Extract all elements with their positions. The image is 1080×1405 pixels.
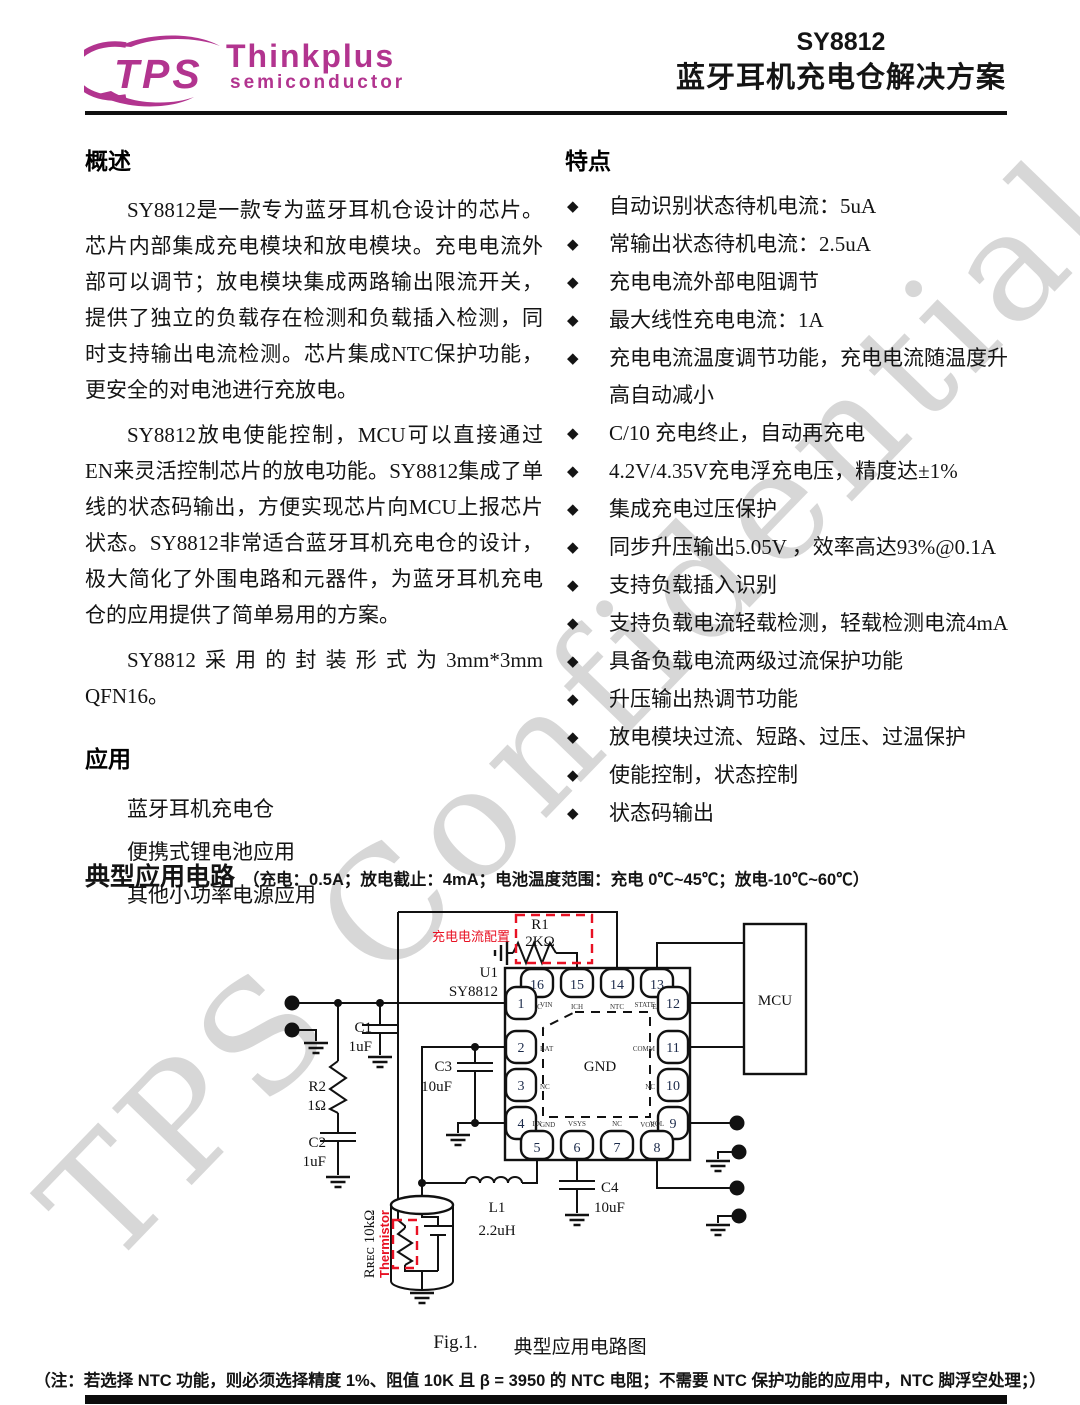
svg-text:6: 6 bbox=[574, 1141, 581, 1156]
list-item: ◆支持负载插入识别 bbox=[565, 567, 1017, 604]
overview-paragraph-3: SY8812采用的封装形式为3mm*3mm QFN16。 bbox=[85, 642, 543, 714]
figure-caption: Fig.1. 典型应用电路图 bbox=[0, 1332, 1080, 1359]
svg-text:LX: LX bbox=[532, 1120, 541, 1128]
ic-part-label: SY8812 bbox=[449, 984, 498, 1000]
svg-text:VSYS: VSYS bbox=[568, 1120, 586, 1128]
svg-text:14: 14 bbox=[610, 978, 624, 993]
svg-text:5: 5 bbox=[534, 1141, 541, 1156]
svg-text:15: 15 bbox=[570, 978, 584, 993]
diamond-bullet-icon: ◆ bbox=[567, 226, 579, 263]
overview-column: 概述 SY8812是一款专为蓝牙耳机仓设计的芯片。芯片内部集成充电模块和放电模块… bbox=[85, 142, 543, 917]
ground-icon bbox=[565, 1215, 589, 1225]
charge-current-annotation: 充电电流配置 bbox=[432, 929, 510, 944]
svg-text:ICH: ICH bbox=[571, 1003, 583, 1011]
list-item: ◆具备负载电流两级过流保护功能 bbox=[565, 643, 1017, 680]
svg-text:VIN: VIN bbox=[540, 1001, 552, 1009]
header-divider bbox=[85, 111, 1007, 115]
svg-text:NTC: NTC bbox=[610, 1003, 624, 1011]
ground-icon bbox=[304, 1043, 328, 1053]
svg-text:12: 12 bbox=[666, 997, 680, 1012]
ground-icon bbox=[495, 941, 507, 965]
diamond-bullet-icon: ◆ bbox=[567, 453, 579, 490]
ic-pad-label: GND bbox=[584, 1059, 617, 1075]
diamond-bullet-icon: ◆ bbox=[567, 681, 579, 718]
svg-text:NC: NC bbox=[612, 1120, 622, 1128]
svg-text:10: 10 bbox=[666, 1079, 680, 1094]
vol-terminal bbox=[730, 1181, 745, 1196]
list-item: ◆常输出状态待机电流：2.5uA bbox=[565, 226, 1017, 263]
l1-value: 2.2uH bbox=[478, 1223, 515, 1239]
part-number: SY8812 bbox=[676, 26, 1006, 58]
c4-value: 10uF bbox=[594, 1200, 625, 1216]
list-item: ◆充电电流温度调节功能，充电电流随温度升高自动减小 bbox=[565, 340, 1017, 414]
c3-refdes: C3 bbox=[434, 1059, 452, 1075]
thermistor-label: Thermistor bbox=[377, 1210, 392, 1278]
list-item: ◆最大线性充电电流：1A bbox=[565, 302, 1017, 339]
page-title: 蓝牙耳机充电仓解决方案 bbox=[676, 58, 1006, 98]
tps-logo-icon: TPS bbox=[84, 34, 236, 110]
l1-refdes: L1 bbox=[489, 1200, 506, 1216]
footer-bar bbox=[85, 1395, 1007, 1404]
gnd-terminal bbox=[732, 1209, 747, 1224]
diamond-bullet-icon: ◆ bbox=[567, 491, 579, 528]
datasheet-page: TPS Confidential TPS Thinkplus semicondu… bbox=[0, 0, 1080, 1405]
list-item: ◆使能控制，状态控制 bbox=[565, 757, 1017, 794]
diamond-bullet-icon: ◆ bbox=[567, 719, 579, 756]
diamond-bullet-icon: ◆ bbox=[567, 643, 579, 680]
circuit-title: 典型应用电路 bbox=[85, 857, 235, 893]
ground-icon bbox=[410, 1293, 434, 1303]
svg-text:8: 8 bbox=[654, 1141, 661, 1156]
overview-paragraph-2: SY8812放电使能控制，MCU可以直接通过EN来灵活控制芯片的放电功能。SY8… bbox=[85, 417, 543, 633]
diamond-bullet-icon: ◆ bbox=[567, 795, 579, 832]
input-terminal bbox=[285, 996, 300, 1011]
overview-heading: 概述 bbox=[85, 142, 543, 176]
svg-text:2: 2 bbox=[518, 1041, 525, 1056]
c4-refdes: C4 bbox=[601, 1180, 619, 1196]
figure-title: 典型应用电路图 bbox=[514, 1332, 647, 1359]
c1-value: 1uF bbox=[349, 1039, 372, 1055]
diamond-bullet-icon: ◆ bbox=[567, 529, 579, 566]
c1-refdes: C1 bbox=[354, 1020, 372, 1036]
diamond-bullet-icon: ◆ bbox=[567, 340, 579, 377]
svg-text:4: 4 bbox=[518, 1117, 525, 1132]
r2-refdes: R2 bbox=[308, 1079, 326, 1095]
list-item: ◆充电电流外部电阻调节 bbox=[565, 264, 1017, 301]
features-column: 特点 ◆自动识别状态待机电流：5uA ◆常输出状态待机电流：2.5uA ◆充电电… bbox=[565, 142, 1017, 833]
r1-refdes: R1 bbox=[531, 917, 549, 933]
diamond-bullet-icon: ◆ bbox=[567, 567, 579, 604]
document-title-block: SY8812 蓝牙耳机充电仓解决方案 bbox=[676, 26, 1006, 98]
svg-text:COMM: COMM bbox=[633, 1045, 656, 1053]
company-logo: TPS Thinkplus semiconductor bbox=[84, 34, 405, 110]
c2-value: 1uF bbox=[303, 1154, 326, 1170]
svg-text:STATE: STATE bbox=[635, 1001, 655, 1009]
overview-paragraph-1: SY8812是一款专为蓝牙耳机仓设计的芯片。芯片内部集成充电模块和放电模块。充电… bbox=[85, 192, 543, 408]
brand-subtitle: semiconductor bbox=[226, 72, 405, 94]
diamond-bullet-icon: ◆ bbox=[567, 264, 579, 301]
svg-text:11: 11 bbox=[666, 1041, 679, 1056]
c3-value: 10uF bbox=[421, 1079, 452, 1095]
svg-text:VOL: VOL bbox=[650, 1120, 664, 1128]
r2-value: 1Ω bbox=[307, 1098, 326, 1114]
brand-name: Thinkplus bbox=[226, 40, 405, 72]
svg-text:NC: NC bbox=[540, 1083, 550, 1091]
svg-text:3: 3 bbox=[518, 1079, 525, 1094]
circuit-conditions: （充电：0.5A；放电截止：4mA；电池温度范围：充电 0℃~45℃；放电-10… bbox=[243, 866, 869, 890]
figure-number: Fig.1. bbox=[433, 1332, 477, 1359]
diamond-bullet-icon: ◆ bbox=[567, 302, 579, 339]
application-circuit-diagram: Rʀᴇᴄ 10kΩ Thermistor GND U1 SY8812 16NC … bbox=[0, 895, 1080, 1360]
list-item: ◆集成充电过压保护 bbox=[565, 491, 1017, 528]
svg-text:GND: GND bbox=[540, 1121, 555, 1129]
ground-icon bbox=[368, 1057, 392, 1067]
ntc-note: （注：若选择 NTC 功能，则必须选择精度 1%、阻值 10K 且 β = 39… bbox=[0, 1367, 1080, 1391]
list-item: ◆状态码输出 bbox=[565, 795, 1017, 832]
list-item: ◆放电模块过流、短路、过压、过温保护 bbox=[565, 719, 1017, 756]
svg-text:NC: NC bbox=[645, 1083, 655, 1091]
ground-icon bbox=[326, 1177, 350, 1187]
diamond-bullet-icon: ◆ bbox=[567, 605, 579, 642]
list-item: ◆支持负载电流轻载检测，轻载检测电流4mA bbox=[565, 605, 1017, 642]
diamond-bullet-icon: ◆ bbox=[567, 415, 579, 452]
r1-value: 2KΩ bbox=[525, 934, 554, 950]
c2-refdes: C2 bbox=[308, 1135, 326, 1151]
logo-text: TPS bbox=[114, 51, 203, 97]
applications-heading: 应用 bbox=[85, 740, 543, 774]
list-item: ◆同步升压输出5.05V ，效率高达93%@0.1A bbox=[565, 529, 1017, 566]
thermistor-resistance-label: Rʀᴇᴄ 10kΩ bbox=[362, 1210, 378, 1279]
svg-text:BAT: BAT bbox=[540, 1045, 554, 1053]
ground-icon bbox=[706, 1225, 730, 1235]
gnd-terminal bbox=[732, 1145, 747, 1160]
vor-terminal bbox=[730, 1116, 745, 1131]
ic-refdes: U1 bbox=[480, 965, 498, 981]
features-list: ◆自动识别状态待机电流：5uA ◆常输出状态待机电流：2.5uA ◆充电电流外部… bbox=[565, 188, 1017, 832]
mcu-label: MCU bbox=[758, 993, 792, 1009]
diamond-bullet-icon: ◆ bbox=[567, 188, 579, 225]
list-item: ◆4.2V/4.35V充电浮充电压，精度达±1% bbox=[565, 453, 1017, 490]
list-item: ◆自动识别状态待机电流：5uA bbox=[565, 188, 1017, 225]
ground-icon bbox=[446, 1135, 470, 1145]
list-item: 蓝牙耳机充电仓 bbox=[85, 788, 543, 831]
svg-text:7: 7 bbox=[614, 1141, 621, 1156]
features-heading: 特点 bbox=[565, 142, 1017, 176]
input-gnd-terminal bbox=[285, 1023, 300, 1038]
list-item: ◆C/10 充电终止，自动再充电 bbox=[565, 415, 1017, 452]
svg-text:1: 1 bbox=[518, 997, 525, 1012]
circuit-section-heading: 典型应用电路 （充电：0.5A；放电截止：4mA；电池温度范围：充电 0℃~45… bbox=[85, 857, 869, 893]
list-item: ◆升压输出热调节功能 bbox=[565, 681, 1017, 718]
ground-icon bbox=[706, 1161, 730, 1171]
svg-text:9: 9 bbox=[670, 1117, 677, 1132]
diamond-bullet-icon: ◆ bbox=[567, 757, 579, 794]
